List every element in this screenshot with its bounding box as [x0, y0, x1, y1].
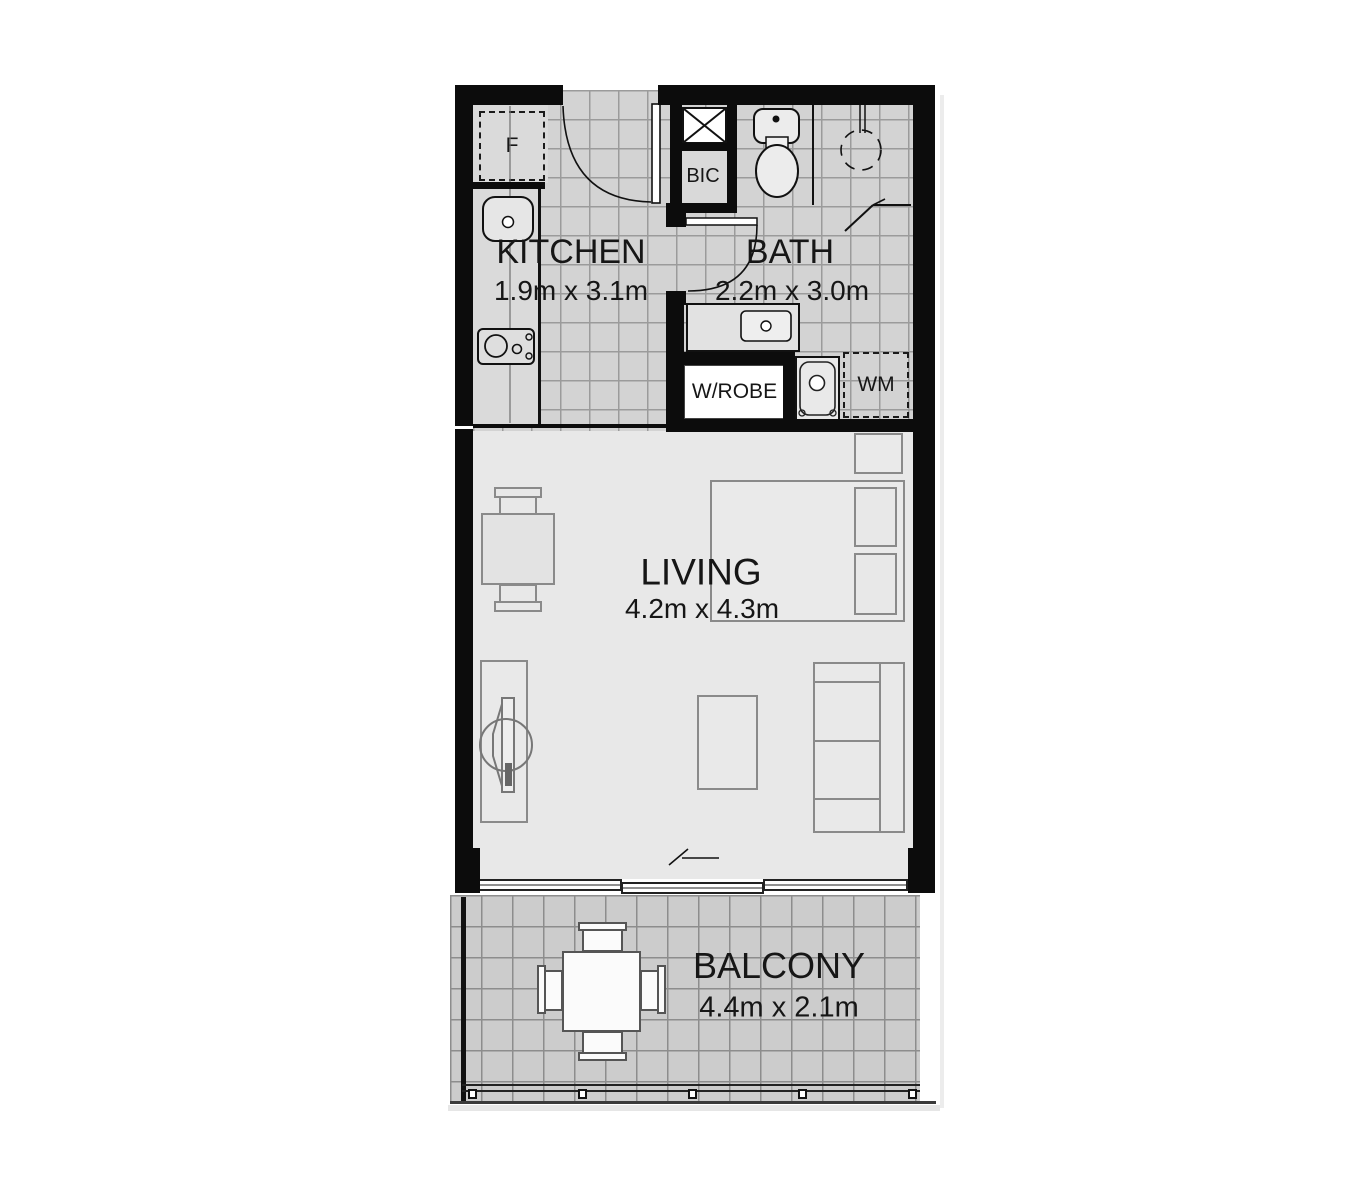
wall-bic-bottom [666, 203, 737, 213]
laundry-tub-icon [799, 362, 836, 416]
bath-door-jamb-top [666, 213, 686, 227]
wall-bic-left [670, 105, 682, 213]
vanity-basin-icon [741, 311, 791, 341]
wall-wardrobe-top [684, 352, 795, 365]
entry-door [563, 104, 660, 203]
tv-icon [480, 698, 532, 792]
living-dimensions: 4.2m x 4.3m [625, 595, 779, 623]
toilet-icon [754, 109, 799, 197]
bath-door-jamb-bottom [666, 291, 686, 305]
shaft-x-icon [684, 109, 725, 142]
balcony-label: BALCONY [693, 948, 865, 984]
kitchen-dimensions: 1.9m x 3.1m [494, 277, 648, 305]
wall-tub-left [783, 352, 795, 419]
wall-counter-top [473, 182, 545, 189]
bic-label: BIC [686, 166, 719, 186]
floor-plan: F W/ROBE WM [0, 0, 1349, 1193]
living-label: LIVING [640, 554, 761, 591]
kitchen-label: KITCHEN [496, 235, 645, 269]
wall-wardrobe-left [666, 305, 684, 431]
wall-top-right [658, 85, 935, 105]
bath-dimensions: 2.2m x 3.0m [715, 277, 869, 305]
cooktop-icon [478, 329, 534, 364]
wall-shaft-bottom [682, 143, 727, 151]
shower-icon [813, 103, 911, 231]
wall-bath-living [666, 419, 935, 432]
wall-stub-bottom-left [455, 848, 480, 893]
bath-label: BATH [746, 235, 834, 269]
wall-stub-bottom-right [908, 848, 935, 893]
door-slide-mark [669, 849, 719, 865]
wall-right [913, 103, 935, 893]
wall-bic-right [727, 105, 737, 213]
balcony-dimensions: 4.4m x 2.1m [699, 994, 859, 1023]
wall-left [455, 103, 473, 893]
kitchen-living-edge [473, 424, 672, 428]
wall-top-left [455, 85, 563, 105]
wall-break-mark [450, 426, 473, 429]
